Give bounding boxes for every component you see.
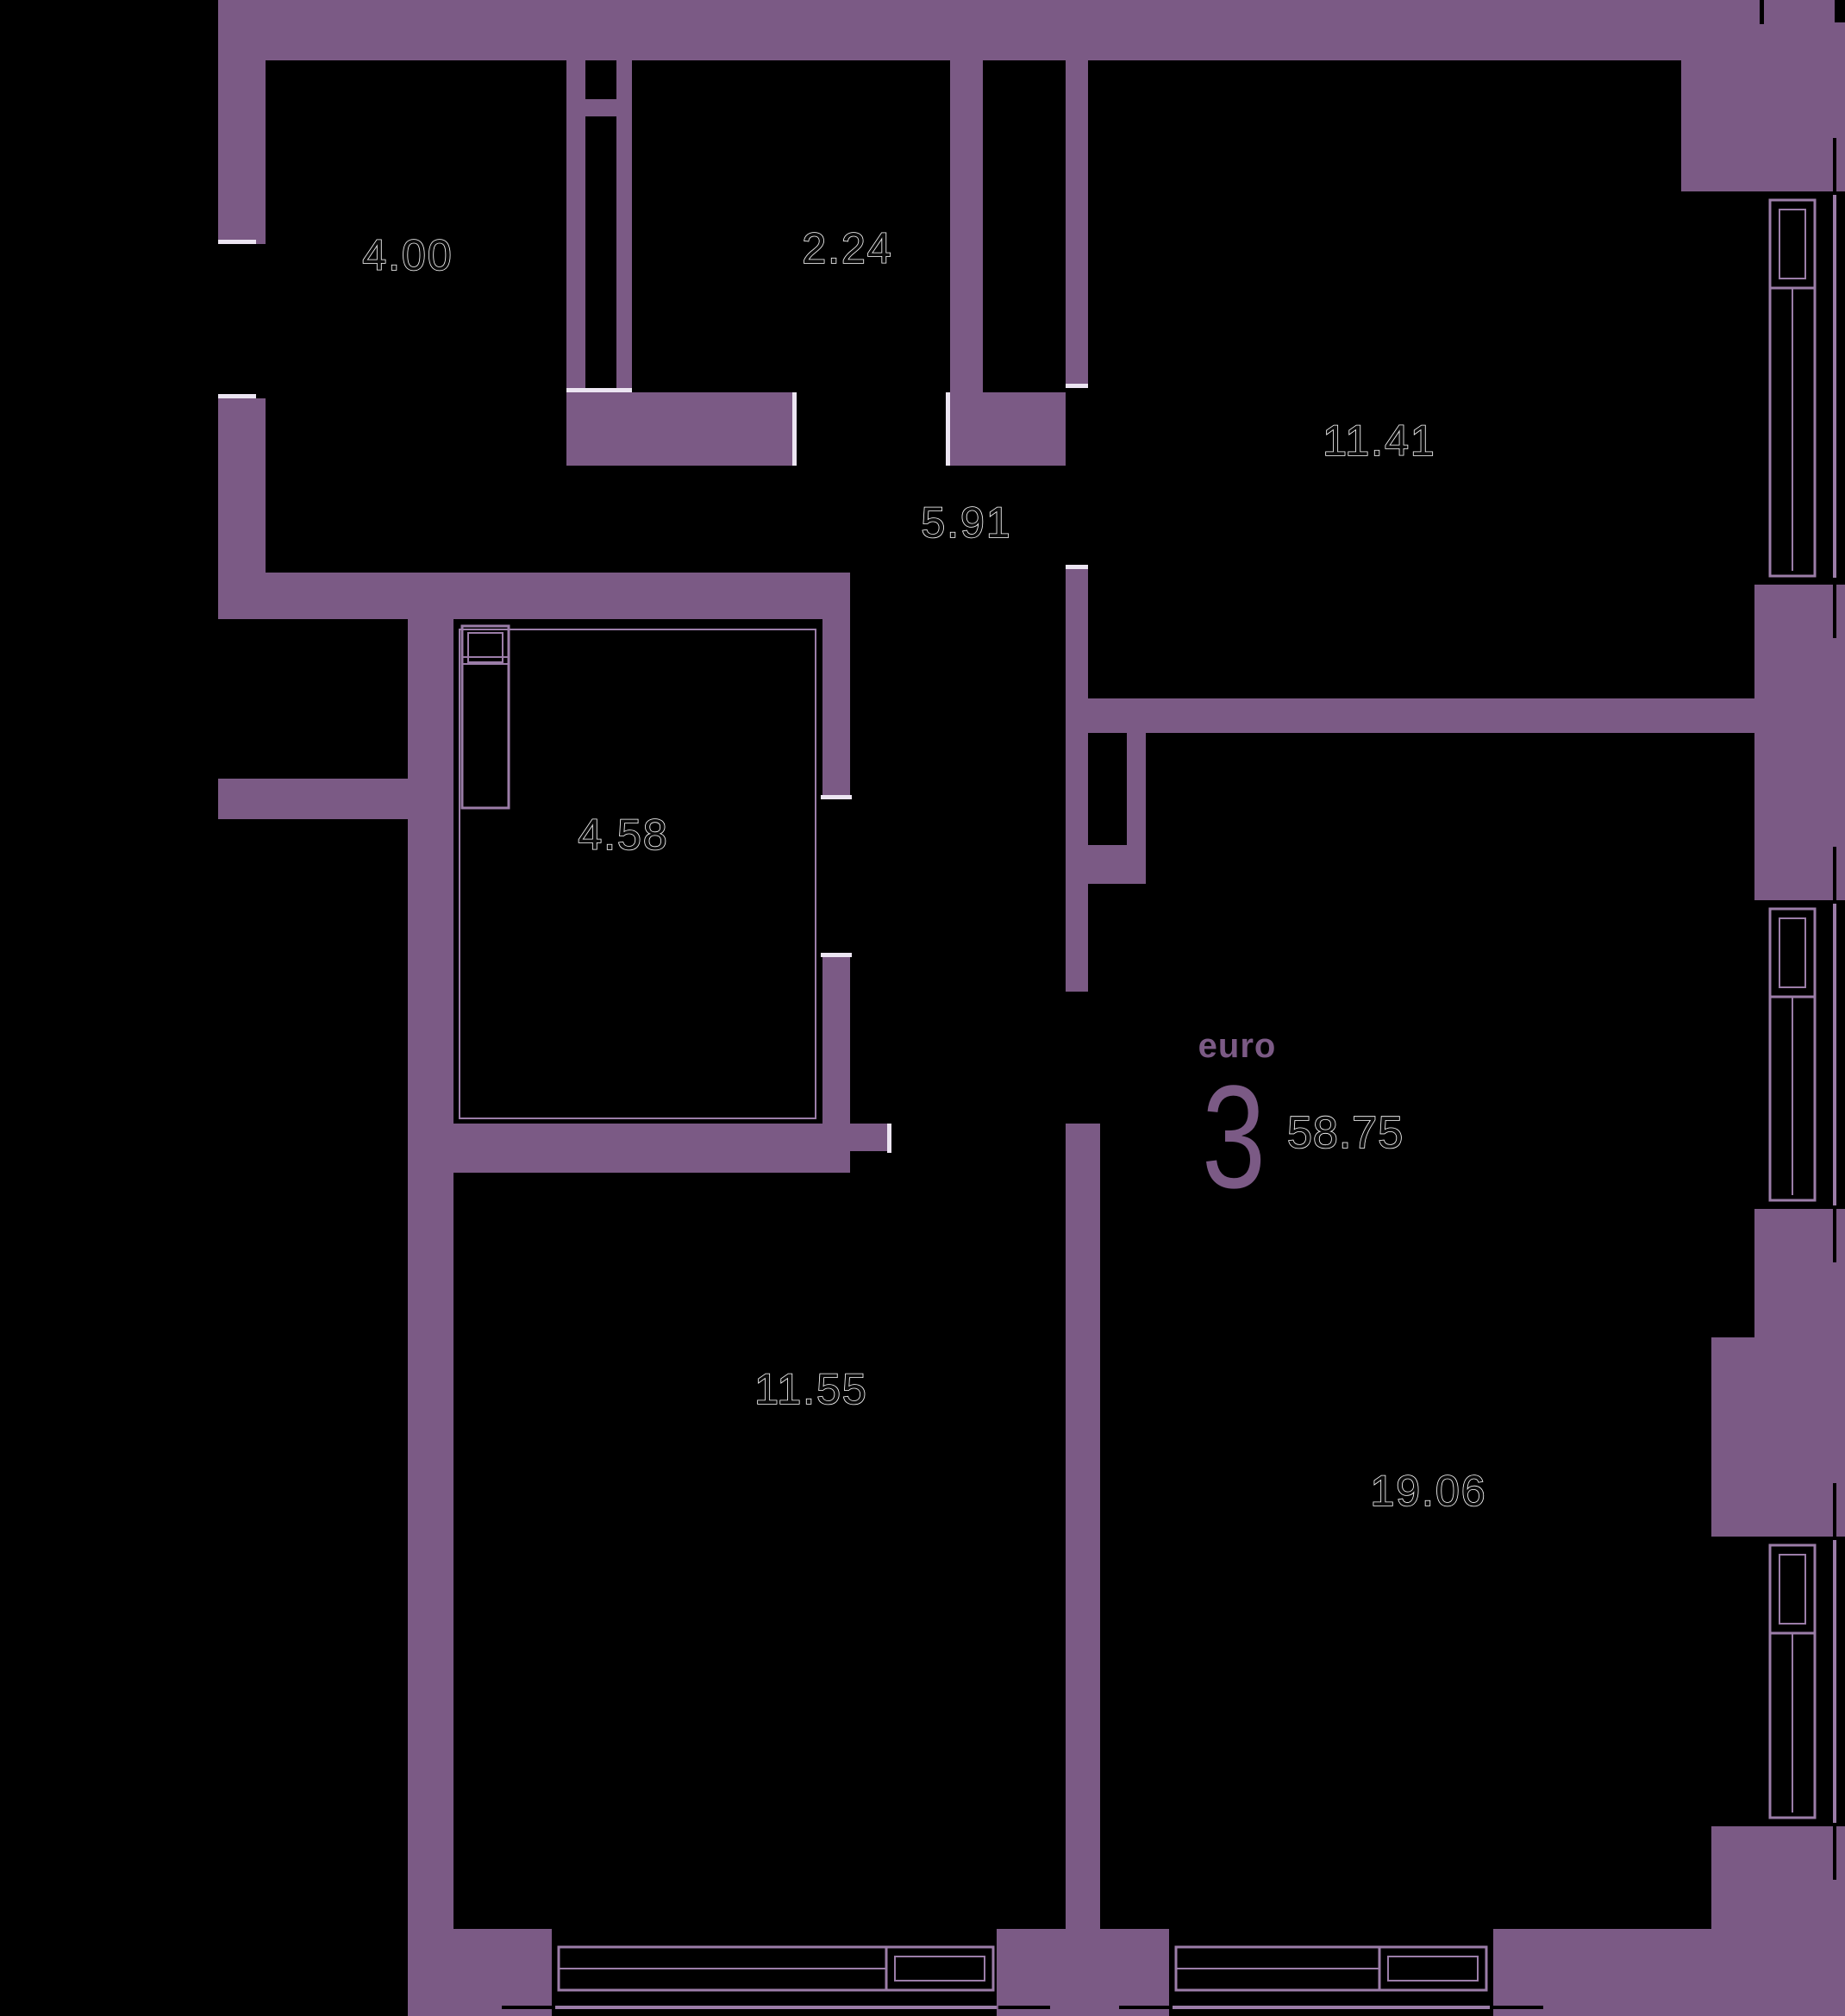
bathroom-door-jamb: [821, 953, 852, 957]
window-sill-end: [1833, 583, 1836, 638]
window-sash: [895, 1957, 985, 1981]
total-area-label: 58.75: [1287, 1108, 1404, 1158]
wall-top: [218, 0, 1845, 60]
wall-bottom-left: [408, 1929, 552, 2016]
bathroom-door-jamb: [821, 795, 852, 799]
wall-storage-right: [950, 60, 983, 466]
wall-bathroom-right-lower: [822, 957, 850, 1173]
window-sill-end: [1833, 138, 1836, 193]
bedroom1-door-jamb: [1066, 565, 1088, 569]
room-area-label-storage: 2.24: [802, 224, 892, 272]
window-sill-end: [1833, 1483, 1836, 1538]
wall-notch: [1835, 0, 1845, 22]
wall-corridor-right: [1066, 565, 1088, 992]
bedroom2-door-jamb: [887, 1124, 891, 1153]
storage-door-jamb: [946, 392, 950, 466]
walls: [218, 0, 1845, 2016]
window-sill-end: [1833, 1207, 1836, 1262]
window-sash: [1779, 210, 1805, 279]
window-sill-end: [1833, 847, 1836, 902]
wall-right-pier-protrusion: [1711, 1337, 1845, 1537]
floor-plan: 4.00 2.24 5.91 11.41 4.58 11.55 19.06 eu…: [0, 0, 1845, 2016]
bedroom1-door-jamb: [1066, 384, 1088, 388]
room-area-label-bedroom1: 11.41: [1323, 416, 1435, 465]
wall-shaft-bottom: [1066, 845, 1146, 884]
room-area-label-hallway: 4.00: [362, 231, 453, 279]
window-sill-end: [502, 2006, 553, 2009]
window-sill-line: [1173, 2006, 1490, 2009]
duct-cabinet-icon: [462, 626, 509, 808]
wall-bottom-right-column: [1711, 1826, 1845, 2016]
window-icon-right-3: [1770, 1483, 1836, 1880]
window-sash: [1779, 1555, 1805, 1624]
window-icon-right-1: [1770, 138, 1836, 638]
window-sill-line: [1833, 195, 1836, 578]
window-icon-right-2: [1770, 847, 1836, 1262]
window-sash: [1388, 1957, 1478, 1981]
unit-type-badge: euro 3 58.75: [1198, 1027, 1404, 1219]
window-sill-line: [1833, 1540, 1836, 1823]
window-sill-end: [998, 2006, 1050, 2009]
entrance-door-jamb: [218, 240, 256, 244]
room-area-label-corridor: 5.91: [921, 498, 1011, 547]
window-sill-end: [1492, 2006, 1543, 2009]
room-labels: 4.00 2.24 5.91 11.41 4.58 11.55 19.06: [362, 224, 1486, 1515]
window-sash: [1779, 918, 1805, 987]
wall-bathroom-bottom-ext: [850, 1124, 891, 1151]
wall-bathroom-bottom: [408, 1124, 850, 1173]
wall-bedroom2-living-divider: [1066, 1124, 1100, 1940]
wall-hallway-bathroom: [218, 573, 843, 619]
room-area-label-bathroom: 4.58: [578, 811, 668, 859]
wall-bedroom1-living-divider: [1088, 698, 1759, 733]
wall-bottom-middle-pier: [997, 1929, 1169, 2016]
vent-shaft-icon: [585, 116, 616, 392]
window-sill-end: [1119, 2006, 1171, 2009]
window-sill-line: [1833, 904, 1836, 1205]
wall-left-long: [408, 573, 453, 2009]
bathroom-fixtures: [460, 626, 816, 1118]
window-icon-bottom-2: [1119, 1947, 1543, 2009]
wall-left-step: [218, 779, 408, 819]
room-area-label-bedroom2: 11.55: [754, 1365, 867, 1413]
bathroom-inner-outline: [460, 629, 816, 1118]
floor-plan-svg: 4.00 2.24 5.91 11.41 4.58 11.55 19.06 eu…: [0, 0, 1845, 2016]
vent-shaft-icon: [585, 60, 616, 99]
window-sill-end: [1833, 1825, 1836, 1880]
rooms-count-label: 3: [1202, 1055, 1266, 1219]
window-sill-line: [555, 2006, 997, 2009]
storage-door-jamb: [792, 392, 797, 466]
window-icon-bottom-1: [502, 1947, 1050, 2009]
wall-storage-bottom-left: [566, 392, 797, 466]
wall-bedroom1-left-upper: [1066, 60, 1088, 388]
storage-wall-jamb: [566, 388, 632, 392]
wall-tick: [1760, 0, 1764, 24]
wall-shaft-right: [1127, 727, 1146, 845]
wall-top-right-block: [1681, 0, 1845, 191]
entrance-door-jamb: [218, 394, 256, 398]
wall-left-upper: [218, 0, 266, 244]
wall-right-pier-1: [1754, 585, 1845, 900]
wall-bathroom-right-upper: [822, 573, 850, 799]
room-area-label-living: 19.06: [1370, 1467, 1486, 1515]
wall-storage-bottom-right: [983, 392, 1066, 466]
